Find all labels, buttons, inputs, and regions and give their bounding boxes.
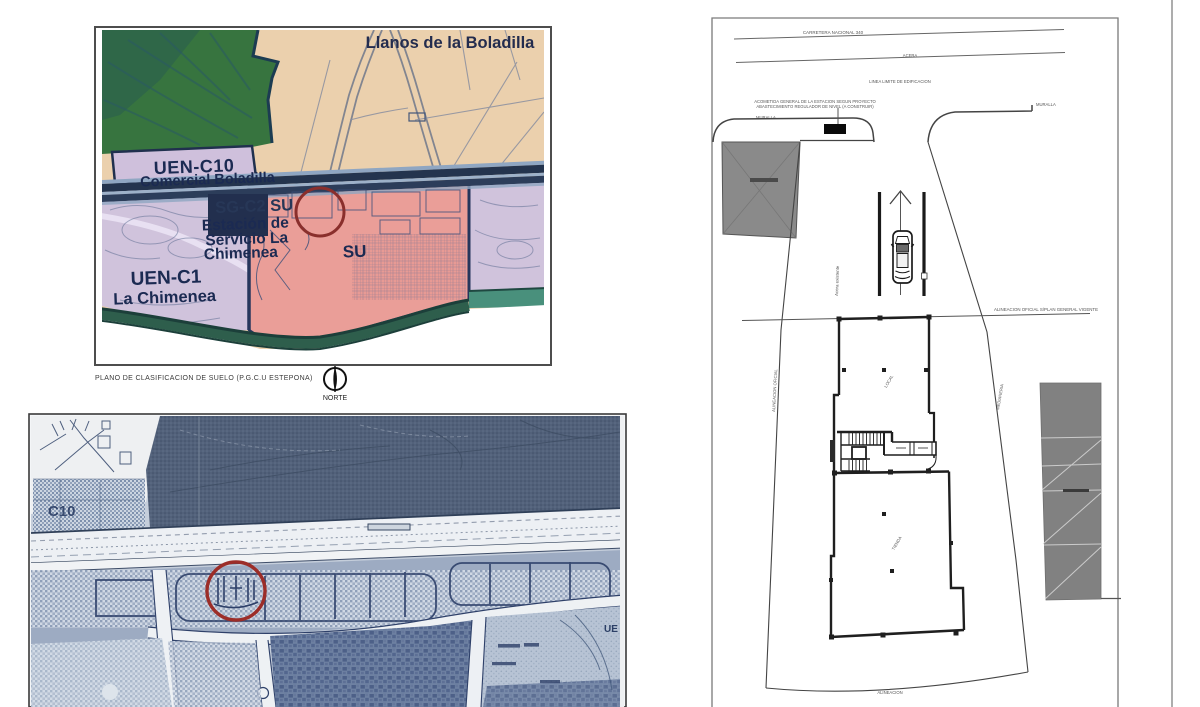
svg-text:UEN-C1: UEN-C1 xyxy=(130,266,202,289)
svg-text:CARRETERA NACIONAL 340: CARRETERA NACIONAL 340 xyxy=(803,30,864,35)
svg-text:La Chimenea: La Chimenea xyxy=(113,287,217,309)
svg-text:Llanos de la Boladilla: Llanos de la Boladilla xyxy=(366,34,536,52)
svg-text:ALINEACION OFICIAL S/PLAN GENE: ALINEACION OFICIAL S/PLAN GENERAL VIGENT… xyxy=(994,307,1098,312)
svg-text:ACERA: ACERA xyxy=(903,53,918,58)
svg-text:LINEA LIMITE DE EDIFICACION: LINEA LIMITE DE EDIFICACION xyxy=(869,79,931,84)
svg-text:Chimenea: Chimenea xyxy=(204,244,279,264)
svg-text:C10: C10 xyxy=(48,503,76,520)
svg-text:ALINEACION: ALINEACION xyxy=(877,690,902,695)
svg-text:ABASTECIMIENTO REGULADOR DE NI: ABASTECIMIENTO REGULADOR DE NIVEL (A CON… xyxy=(756,104,874,109)
svg-text:PLANO DE CLASIFICACION DE SUEL: PLANO DE CLASIFICACION DE SUELO (P.G.C.U… xyxy=(95,375,313,382)
svg-text:NORTE: NORTE xyxy=(323,395,348,402)
svg-text:MURALLA: MURALLA xyxy=(1036,102,1056,107)
svg-text:UE: UE xyxy=(604,624,618,635)
svg-text:SU: SU xyxy=(343,242,367,262)
